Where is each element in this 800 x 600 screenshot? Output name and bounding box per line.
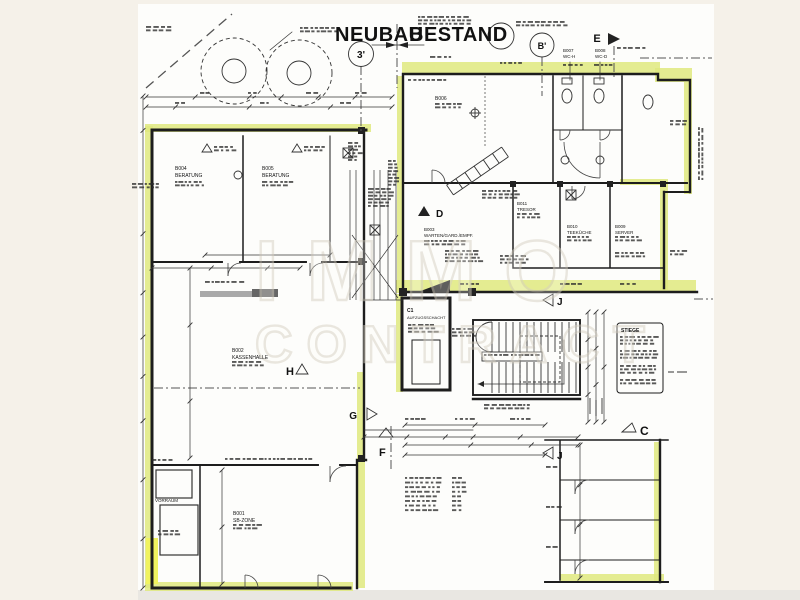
watermark-line1: IMMO: [255, 224, 598, 319]
marker-J1: J: [557, 297, 563, 308]
room-label-b001-id: B001: [233, 511, 245, 517]
watermark-line2: CONTRACT: [255, 316, 659, 374]
room-label-vorraum: VORRAUM: [155, 498, 178, 503]
room-label-b009-id: B009: [615, 224, 626, 229]
room-label-c1-id: C1: [407, 308, 414, 314]
marker-3: 3': [357, 50, 365, 61]
room-label-b007-id: B007: [563, 48, 574, 53]
marker-D: D: [436, 209, 443, 220]
room-label-b005-id: B005: [262, 166, 274, 172]
room-label-b011-id: B011: [517, 201, 528, 206]
room-label-b008-id: B008: [595, 48, 606, 53]
scan-edge-strip: [138, 590, 800, 600]
marker-B: B': [538, 41, 547, 51]
title-bestand: BESTAND: [409, 24, 508, 46]
room-label-b010-id: B010: [567, 224, 578, 229]
floorplan-drawing: IMMO CONTRACT NEUBAU BESTAND 3' B' E D J…: [0, 0, 800, 600]
room-label-b010-name: TEEKÜCHE: [567, 229, 592, 235]
floorplan-page: IMMO CONTRACT NEUBAU BESTAND 3' B' E D J…: [0, 0, 800, 600]
watermark: IMMO CONTRACT: [255, 224, 659, 374]
room-label-b003-id: B003: [424, 227, 435, 232]
room-label-c1-name: AUFZUGSSCHACHT: [407, 315, 446, 320]
room-label-b002-id: B002: [232, 348, 244, 354]
marker-F: F: [379, 447, 386, 459]
room-label-b006-id: B006: [435, 96, 447, 102]
room-label-b001-name: SB-ZONE: [233, 518, 256, 524]
notes-box-title: STIEGE: [621, 328, 640, 334]
room-label-b004-id: B004: [175, 166, 187, 172]
room-label-b002-name: KASSENHALLE: [232, 355, 269, 361]
room-label-b004-name: BERATUNG: [175, 173, 203, 179]
room-label-b008-name: WC-D: [595, 54, 608, 59]
marker-E: E: [593, 33, 600, 45]
marker-G: G: [349, 411, 357, 422]
room-label-b005-name: BERATUNG: [262, 173, 290, 179]
room-label-b007-name: WC-H: [563, 54, 575, 59]
room-label-b009-name: SERVER: [615, 230, 634, 235]
room-label-b011-name: TRESOR: [517, 207, 537, 212]
marker-J2: J: [557, 451, 563, 462]
marker-H: H: [286, 366, 294, 378]
marker-C: C: [640, 424, 649, 438]
room-label-b003-name: WARTEN/GARD./EMPF.: [424, 233, 473, 238]
